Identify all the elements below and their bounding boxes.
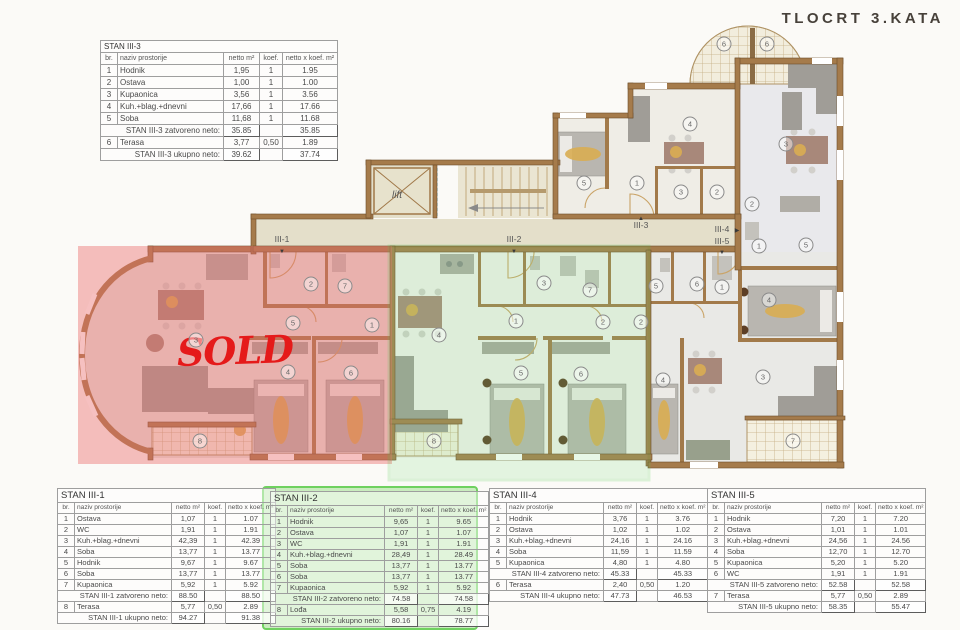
svg-text:1: 1	[720, 283, 724, 292]
stan-iii-1-table: STAN III-1br.naziv prostorijenetto m²koe…	[57, 488, 276, 624]
svg-text:6: 6	[579, 370, 583, 379]
svg-text:3: 3	[761, 373, 765, 382]
svg-text:2: 2	[715, 188, 719, 197]
svg-text:2: 2	[601, 318, 605, 327]
svg-text:1: 1	[514, 317, 518, 326]
svg-text:3: 3	[194, 336, 198, 345]
svg-text:6: 6	[695, 280, 699, 289]
stan-iii-2-table: STAN III-2br.naziv prostorijenetto m²koe…	[270, 491, 489, 627]
page-title: TLOCRT 3.KATA	[782, 10, 944, 27]
svg-text:4: 4	[688, 120, 692, 129]
stan-iii-4-table: STAN III-4br.naziv prostorijenetto m²koe…	[489, 488, 708, 602]
svg-text:4: 4	[767, 296, 771, 305]
svg-text:III-5: III-5	[715, 236, 730, 246]
svg-text:3: 3	[784, 140, 788, 149]
svg-text:5: 5	[519, 369, 523, 378]
svg-text:4: 4	[661, 376, 665, 385]
svg-text:3: 3	[679, 188, 683, 197]
svg-text:8: 8	[432, 437, 436, 446]
svg-text:7: 7	[791, 437, 795, 446]
svg-text:2: 2	[750, 200, 754, 209]
svg-text:7: 7	[343, 282, 347, 291]
svg-text:7: 7	[588, 286, 592, 295]
svg-text:1: 1	[370, 321, 374, 330]
stan-iii-5-table: STAN III-5br.naziv prostorijenetto m²koe…	[707, 488, 926, 613]
svg-text:2: 2	[639, 318, 643, 327]
svg-text:4: 4	[437, 331, 441, 340]
svg-text:6: 6	[349, 369, 353, 378]
svg-text:5: 5	[291, 319, 295, 328]
svg-text:3: 3	[542, 279, 546, 288]
svg-text:▼: ▼	[279, 249, 285, 255]
svg-text:1: 1	[757, 242, 761, 251]
svg-text:6: 6	[722, 40, 726, 49]
svg-text:6: 6	[765, 40, 769, 49]
lift-label: lift	[392, 190, 403, 201]
svg-text:8: 8	[198, 437, 202, 446]
svg-text:2: 2	[309, 280, 313, 289]
svg-text:III-1: III-1	[275, 234, 290, 244]
svg-text:5: 5	[582, 179, 586, 188]
stan-iii-3-table: STAN III-3br.naziv prostorijenetto m²koe…	[100, 40, 338, 161]
svg-text:4: 4	[286, 368, 290, 377]
svg-text:III-2: III-2	[507, 234, 522, 244]
svg-text:5: 5	[654, 282, 658, 291]
svg-text:1: 1	[635, 179, 639, 188]
svg-text:▶: ▶	[735, 228, 740, 234]
svg-text:▼: ▼	[719, 250, 725, 256]
svg-text:▼: ▼	[511, 249, 517, 255]
svg-text:III-4: III-4	[715, 224, 730, 234]
svg-text:▲: ▲	[638, 216, 644, 222]
lift	[374, 168, 437, 216]
svg-text:5: 5	[804, 241, 808, 250]
